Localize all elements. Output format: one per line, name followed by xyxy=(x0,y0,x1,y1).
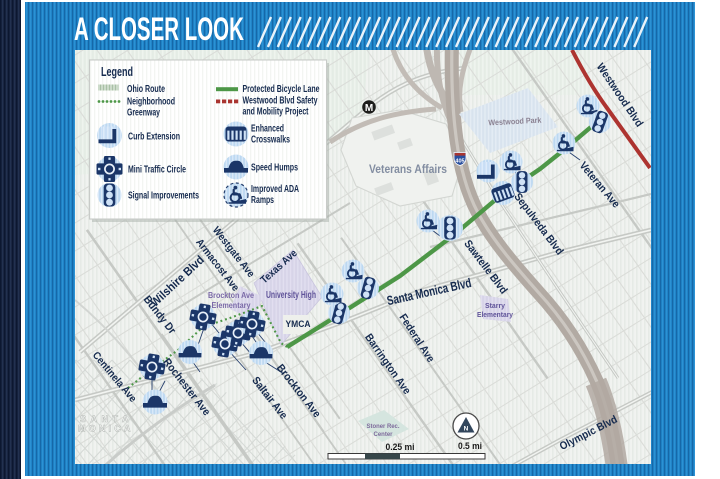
svg-text:A CLOSER LOOK: A CLOSER LOOK xyxy=(74,11,244,47)
svg-text:MONICA: MONICA xyxy=(78,424,134,434)
svg-text:Ramps: Ramps xyxy=(251,195,274,206)
svg-text:Legend: Legend xyxy=(101,65,133,79)
svg-text:Speed Humps: Speed Humps xyxy=(251,163,298,174)
svg-text:Greenway: Greenway xyxy=(127,108,160,119)
svg-text:Improved ADA: Improved ADA xyxy=(251,184,299,195)
svg-text:0.5 mi: 0.5 mi xyxy=(458,441,482,452)
svg-text:University High: University High xyxy=(266,290,316,301)
svg-text:Protected Bicycle Lane: Protected Bicycle Lane xyxy=(243,84,320,95)
svg-text:Westwood Blvd Safety: Westwood Blvd Safety xyxy=(243,96,318,107)
svg-text:Signal Improvements: Signal Improvements xyxy=(128,191,199,202)
svg-text:Brockton Ave: Brockton Ave xyxy=(208,291,254,300)
svg-text:Ohio Route: Ohio Route xyxy=(127,84,165,95)
svg-text:Veterans Affairs: Veterans Affairs xyxy=(369,164,447,176)
svg-text:Stoner Rec.: Stoner Rec. xyxy=(367,423,400,430)
svg-text:and Mobility Project: and Mobility Project xyxy=(243,107,310,118)
svg-text:405: 405 xyxy=(455,159,464,165)
svg-text:SANTA: SANTA xyxy=(80,414,133,424)
svg-text:Crosswalks: Crosswalks xyxy=(251,135,290,146)
svg-text:YMCA: YMCA xyxy=(286,319,311,330)
svg-text:Center: Center xyxy=(374,431,393,438)
svg-text:Neighborhood: Neighborhood xyxy=(127,97,175,108)
svg-text:M: M xyxy=(365,103,373,114)
svg-text:Starry: Starry xyxy=(485,301,506,310)
svg-text:0.25 mi: 0.25 mi xyxy=(386,442,415,453)
svg-text:N: N xyxy=(464,426,469,433)
svg-text:Mini Traffic Circle: Mini Traffic Circle xyxy=(128,165,186,176)
svg-text:Enhanced: Enhanced xyxy=(251,124,284,135)
svg-text:Curb Extension: Curb Extension xyxy=(128,132,180,143)
svg-text:Elementary: Elementary xyxy=(477,310,514,319)
svg-text:Elementary: Elementary xyxy=(212,301,251,310)
